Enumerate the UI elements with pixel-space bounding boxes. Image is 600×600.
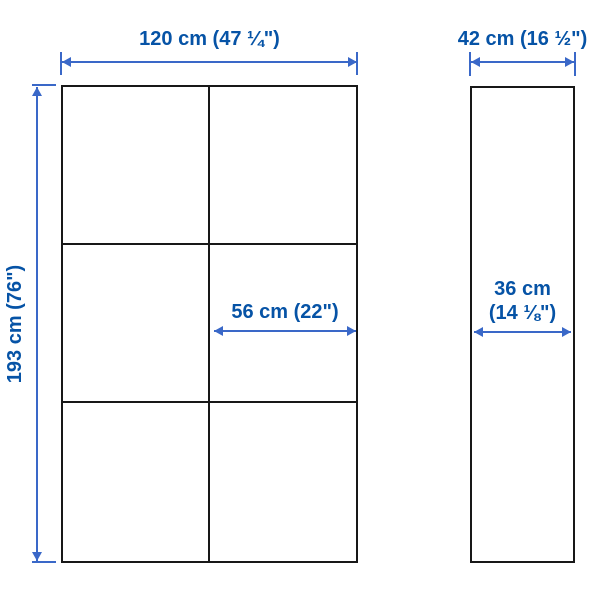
inner-depth-label-line2: (14 ⅛") bbox=[468, 301, 577, 325]
inner-depth-label: 36 cm (14 ⅛") bbox=[468, 277, 577, 325]
cabinet-cell bbox=[63, 403, 210, 561]
side-depth-arrow bbox=[471, 61, 574, 63]
side-depth-label: 42 cm (16 ½") bbox=[440, 27, 600, 51]
cabinet-cell bbox=[63, 87, 210, 245]
cabinet-cell bbox=[210, 87, 357, 245]
inner-depth-label-line1: 36 cm bbox=[468, 277, 577, 301]
extension-line bbox=[32, 561, 56, 563]
cabinet-front-view bbox=[61, 85, 358, 563]
extension-line bbox=[469, 52, 471, 76]
front-width-arrow bbox=[62, 61, 357, 63]
cabinet-cell bbox=[63, 245, 210, 403]
front-height-arrow bbox=[36, 87, 38, 561]
extension-line bbox=[356, 52, 358, 75]
product-dimension-diagram: 120 cm (47 ¼") 42 cm (16 ½") 193 cm (76"… bbox=[0, 0, 600, 600]
cabinet-cell bbox=[210, 403, 357, 561]
extension-line bbox=[32, 84, 56, 86]
front-height-label: 193 cm (76") bbox=[3, 214, 29, 434]
door-width-arrow bbox=[214, 330, 356, 332]
extension-line bbox=[60, 52, 62, 75]
door-width-label: 56 cm (22") bbox=[212, 300, 358, 324]
inner-depth-arrow bbox=[474, 331, 571, 333]
front-width-label: 120 cm (47 ¼") bbox=[61, 27, 358, 51]
extension-line bbox=[574, 52, 576, 76]
cabinet-cell bbox=[210, 245, 357, 403]
